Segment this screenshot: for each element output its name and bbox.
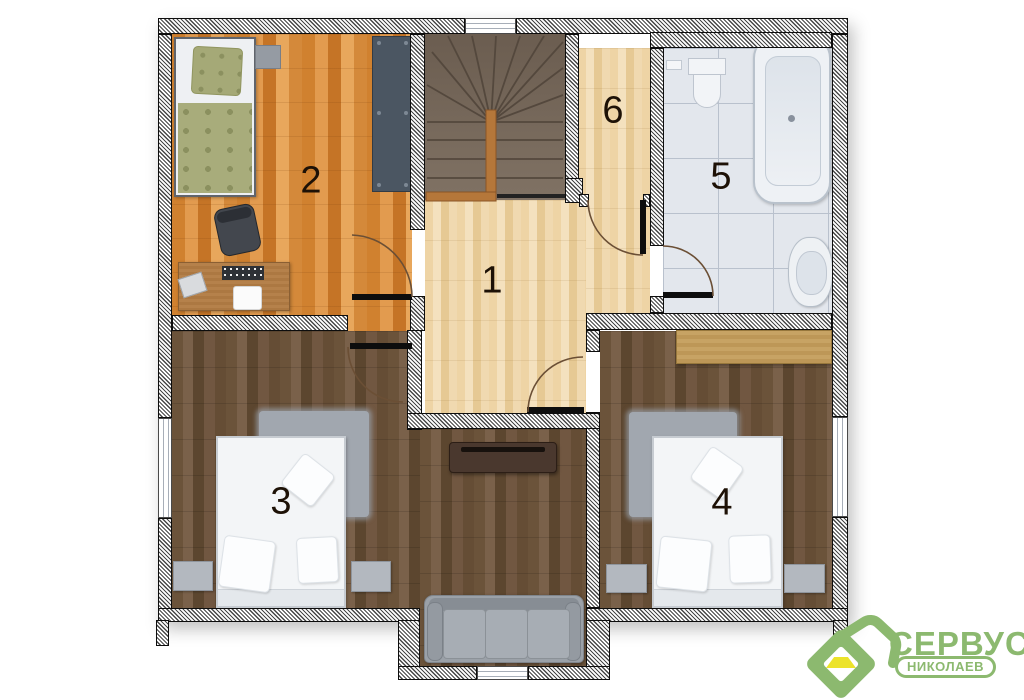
stair-edge <box>497 194 565 198</box>
logo-city-badge: НИКОЛАЕВ <box>895 656 996 678</box>
room-label-closet: 6 <box>602 90 623 133</box>
stair-railing <box>426 110 496 201</box>
door-leaf <box>350 200 713 413</box>
plan-linework <box>0 0 1024 700</box>
room-label-hall: 1 <box>481 260 502 303</box>
room-label-bathroom: 5 <box>710 156 731 199</box>
room-label-bedroom-right: 4 <box>711 482 732 525</box>
floor-plan-image: 1 2 3 4 5 6 СЕРВУС НИКОЛАЕВ <box>0 0 1024 700</box>
door-arc <box>348 200 713 412</box>
room-label-bedroom-top: 2 <box>300 160 321 203</box>
room-label-bedroom-left: 3 <box>270 481 291 524</box>
